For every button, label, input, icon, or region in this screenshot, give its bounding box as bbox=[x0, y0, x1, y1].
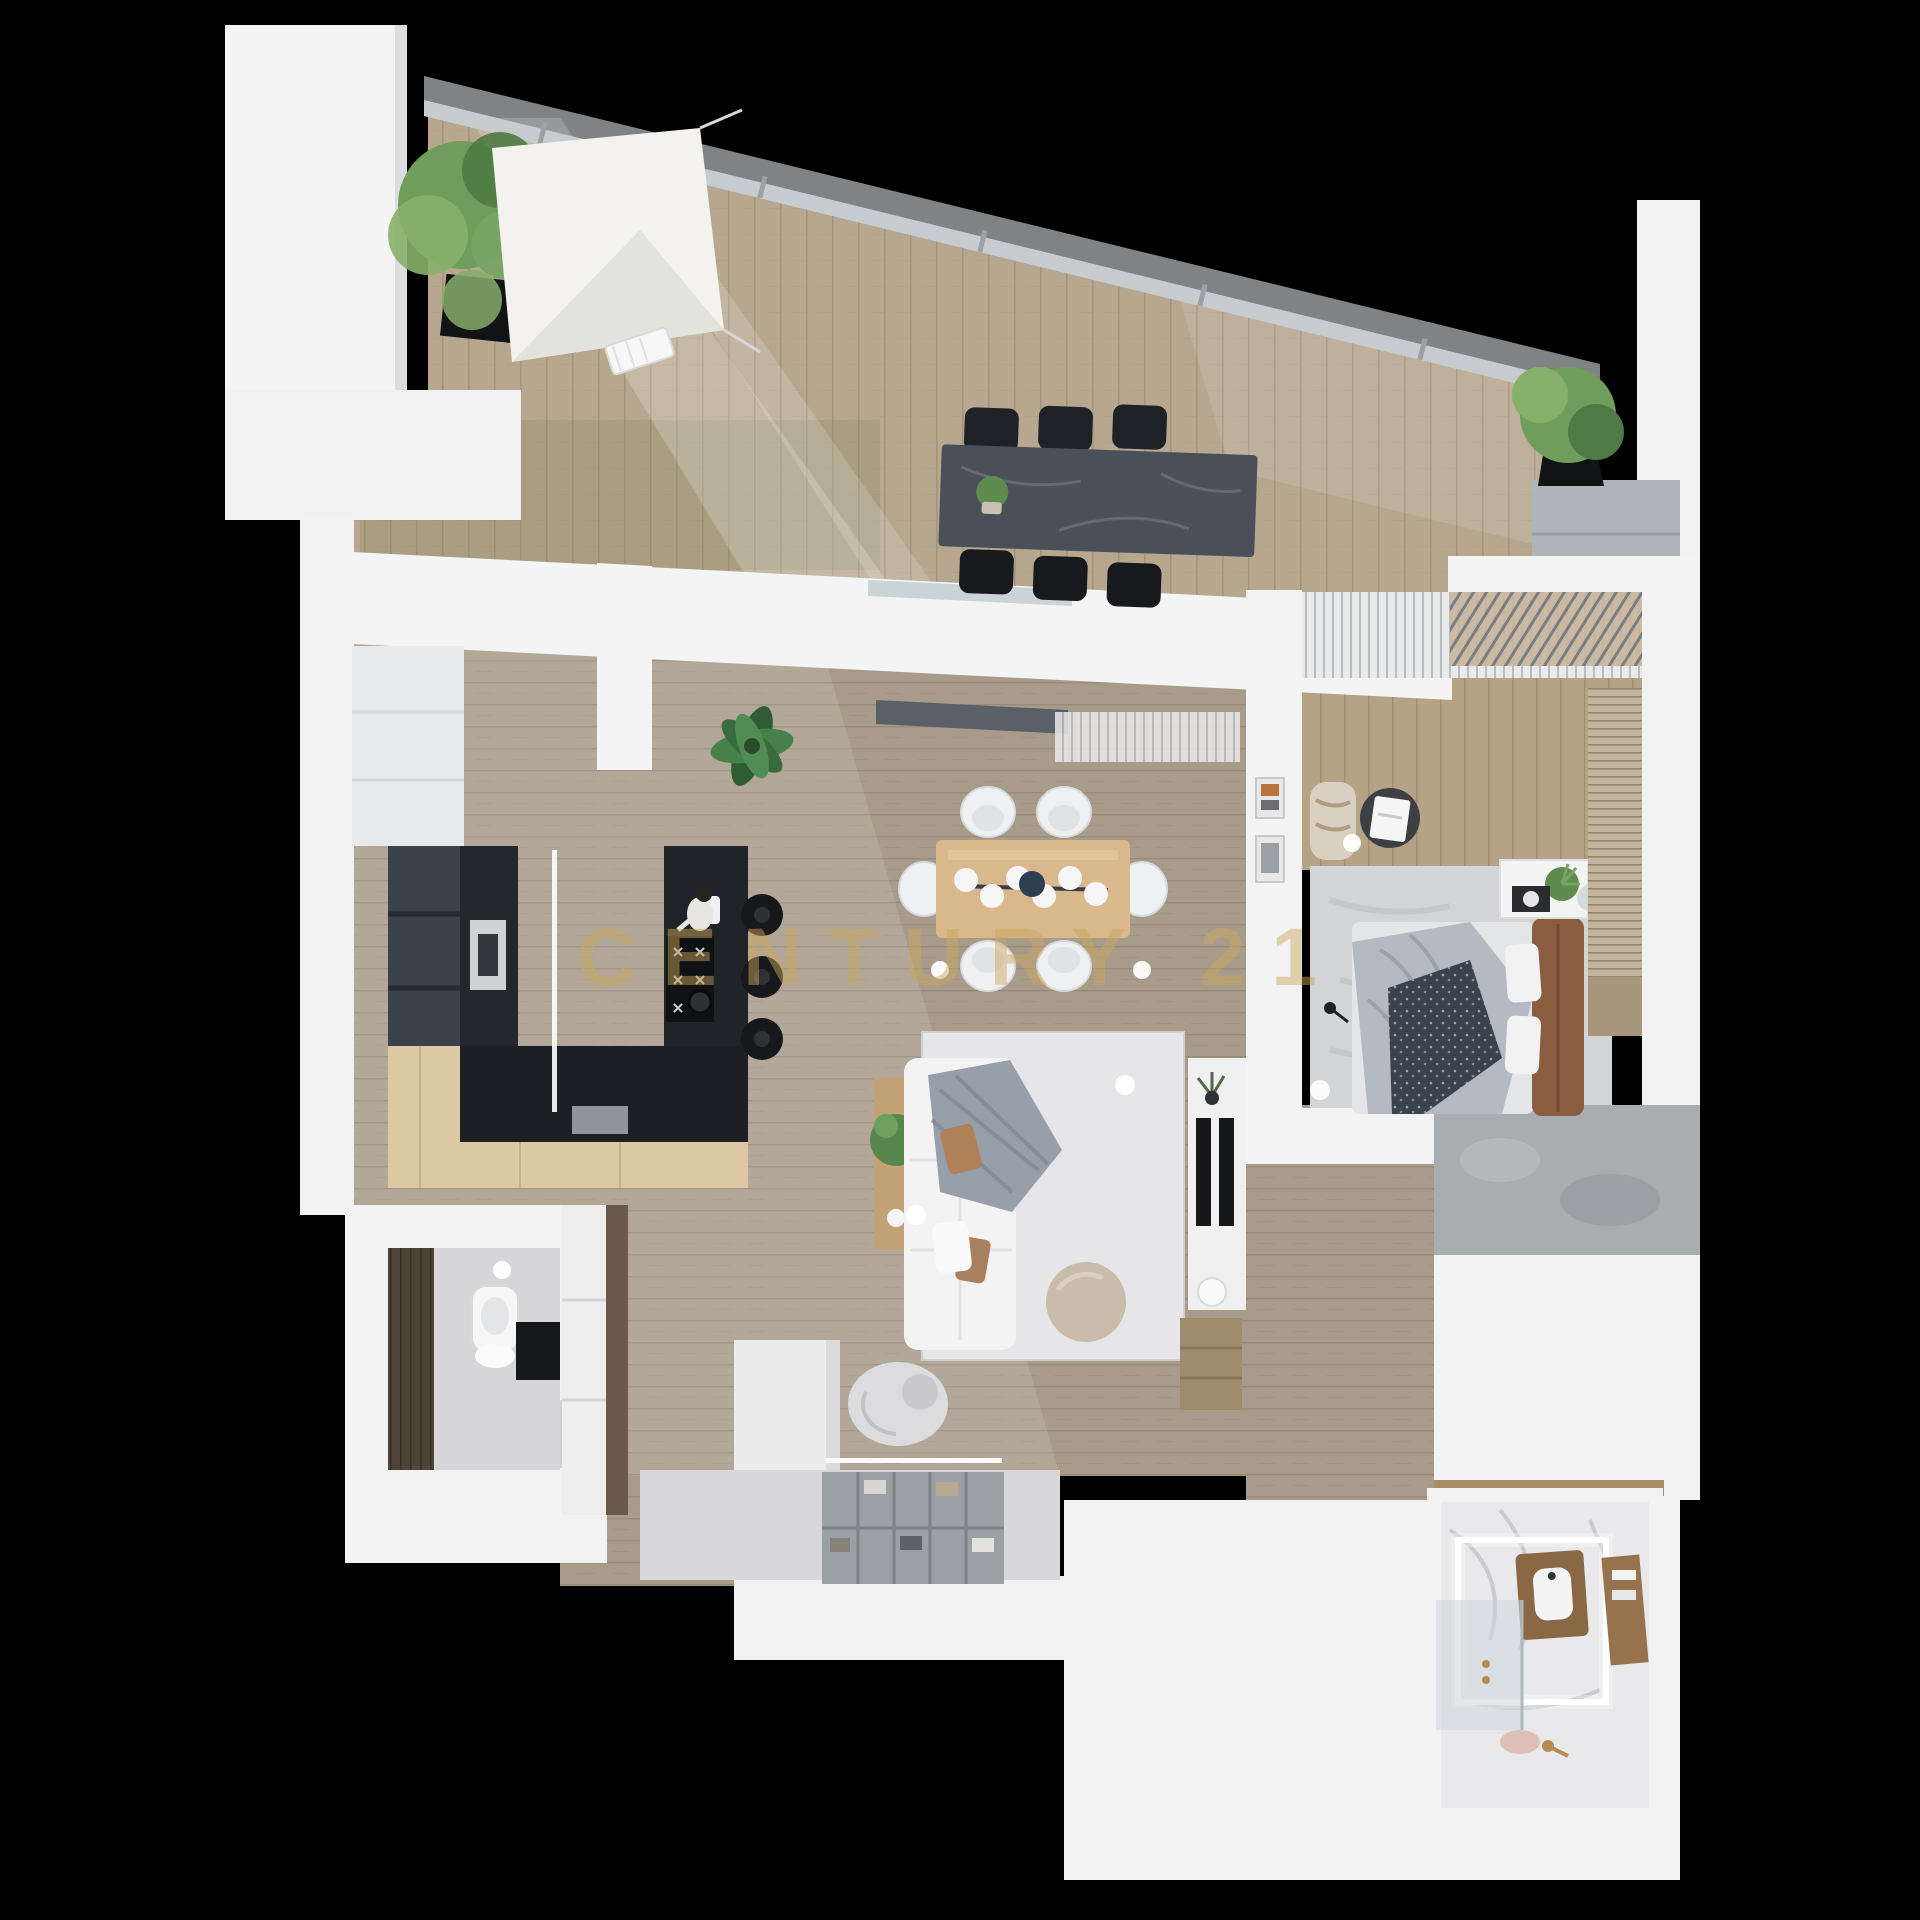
led-strip bbox=[552, 850, 557, 1112]
pot bbox=[689, 991, 711, 1013]
floor-plan-stage: CENTURY 21 bbox=[0, 0, 1920, 1920]
left-wall bbox=[300, 515, 354, 1215]
wood-accent-strip bbox=[606, 1205, 628, 1515]
shoe-shelf-unit bbox=[822, 1472, 1004, 1584]
plaster-wall bbox=[1434, 1105, 1700, 1257]
bedroom-right-wall bbox=[1642, 600, 1700, 1160]
bed bbox=[1352, 918, 1584, 1116]
ceiling-spot bbox=[1133, 961, 1151, 979]
ceiling-spot bbox=[1310, 1080, 1330, 1100]
curtain-fold-band bbox=[1055, 712, 1240, 762]
wood-vanity bbox=[1515, 1550, 1589, 1641]
bathroom-upper-wall bbox=[1434, 1255, 1700, 1500]
wc-ceiling-light bbox=[493, 1261, 511, 1279]
roof-step bbox=[225, 390, 521, 520]
outdoor-chair bbox=[1112, 404, 1168, 450]
toilet bbox=[472, 1286, 518, 1368]
ceiling-spot bbox=[906, 1205, 926, 1225]
tv-unit bbox=[1188, 1058, 1246, 1310]
wardrobe-slats bbox=[1588, 688, 1642, 978]
counter-mat bbox=[572, 1106, 628, 1134]
bed-pillow bbox=[1504, 943, 1542, 1003]
entry-led-strip bbox=[826, 1458, 1002, 1463]
books bbox=[1369, 796, 1410, 843]
outdoor-chair bbox=[1038, 406, 1094, 452]
bath-mat bbox=[1500, 1730, 1540, 1754]
bar-stools bbox=[741, 894, 783, 1060]
ceiling-spot bbox=[1115, 1075, 1135, 1095]
pergola-slats bbox=[1450, 592, 1642, 666]
bathroom bbox=[1434, 1480, 1664, 1815]
wardrobe-doors bbox=[562, 1205, 606, 1515]
wc-black-vanity bbox=[516, 1322, 560, 1380]
ceiling-spot bbox=[931, 961, 949, 979]
wc-accent-wall bbox=[388, 1248, 434, 1470]
outdoor-chair bbox=[1033, 555, 1089, 601]
pillow-white bbox=[931, 1220, 972, 1273]
outdoor-chair bbox=[959, 549, 1015, 595]
armchair bbox=[848, 1362, 948, 1446]
entry-bottom-wall bbox=[734, 1576, 1064, 1660]
media-steps bbox=[1180, 1318, 1242, 1410]
white-cabinets bbox=[352, 646, 464, 846]
speaker bbox=[1219, 1118, 1234, 1226]
speaker bbox=[1196, 1118, 1211, 1226]
floor-lamp bbox=[1198, 1278, 1226, 1306]
outdoor-chair bbox=[1106, 562, 1162, 608]
roof-block-top-left bbox=[225, 25, 405, 395]
entry bbox=[640, 1458, 1060, 1584]
bed-pillow bbox=[1505, 1015, 1542, 1075]
floor-plan-render bbox=[0, 0, 1920, 1920]
wall-stub bbox=[597, 563, 652, 770]
shower-glass bbox=[1436, 1600, 1522, 1730]
drawer-units bbox=[388, 846, 460, 1054]
dresser bbox=[1588, 978, 1642, 1036]
hallway-floor bbox=[1246, 1105, 1434, 1505]
